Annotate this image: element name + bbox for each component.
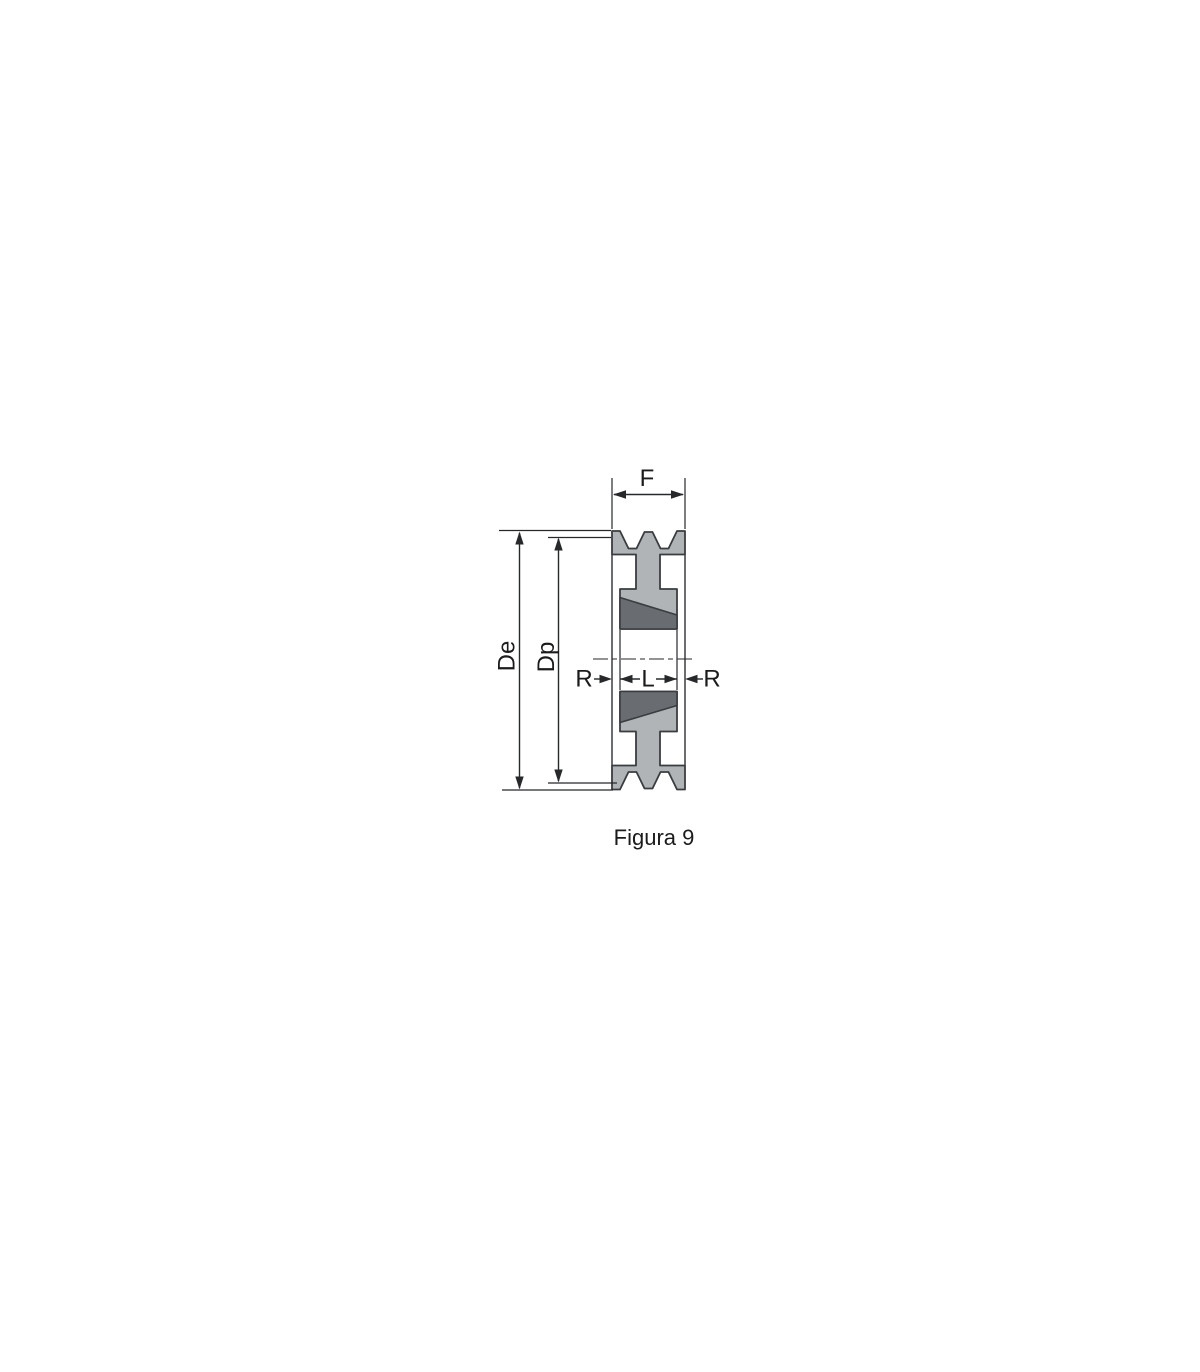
de-arrow-bottom-icon xyxy=(515,777,523,790)
dp-label: Dp xyxy=(533,642,560,673)
f-arrow-right-icon xyxy=(671,490,684,499)
dp-arrow-top-icon xyxy=(554,538,562,551)
l-arrow-right-icon xyxy=(665,675,678,683)
r-left-label: R xyxy=(575,666,592,693)
de-arrow-top-icon xyxy=(515,532,523,545)
dimension-dp: Dp xyxy=(533,538,617,784)
figure-caption: Figura 9 xyxy=(614,825,695,850)
de-label: De xyxy=(494,641,521,672)
r-left-arrow-icon xyxy=(600,675,613,683)
dimension-f: F xyxy=(612,465,685,529)
f-label: F xyxy=(640,465,655,492)
r-right-label: R xyxy=(703,666,720,693)
dimension-rlr: R L R xyxy=(575,630,720,693)
figure-page: F De Dp R xyxy=(0,0,1200,1372)
pulley-section-diagram: F De Dp R xyxy=(0,0,1200,1372)
dp-arrow-bottom-icon xyxy=(554,770,562,783)
pulley-body xyxy=(612,531,685,790)
l-label: L xyxy=(641,666,654,693)
f-arrow-left-icon xyxy=(613,490,626,499)
